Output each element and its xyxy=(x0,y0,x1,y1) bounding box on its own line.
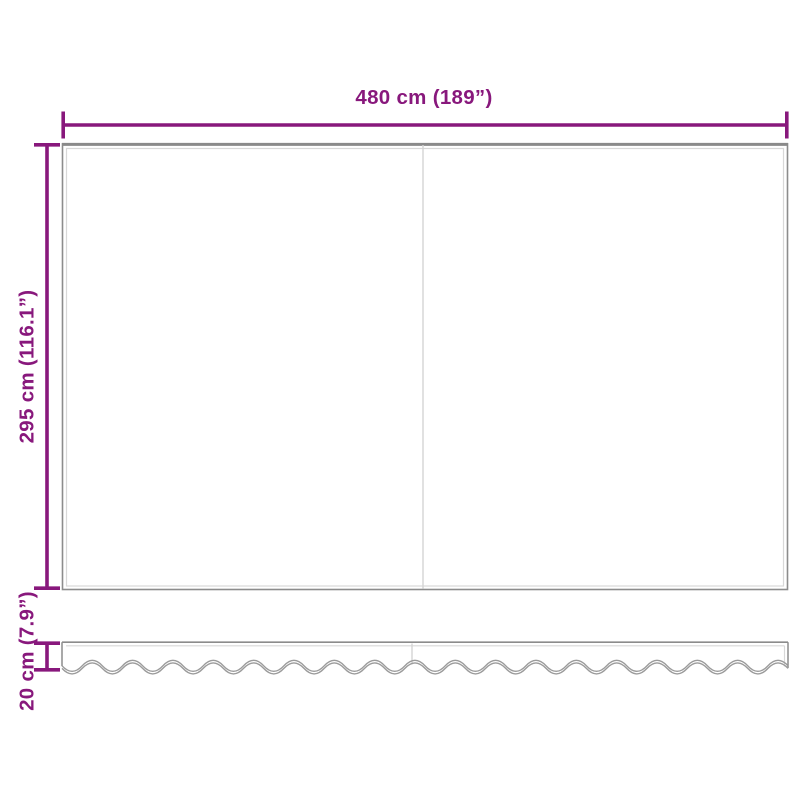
fabric-panel-outline xyxy=(63,144,788,590)
height-dimension-label: 295 cm (116.1”) xyxy=(16,290,39,444)
product-dimension-diagram: 480 cm (189”) 295 cm (116.1”) 20 cm (7.9… xyxy=(0,0,800,800)
valance-wave-inner xyxy=(62,663,788,674)
width-dimension-label: 480 cm (189”) xyxy=(355,86,492,109)
valance-strip xyxy=(62,642,788,674)
width-dimension: 480 cm (189”) xyxy=(63,86,787,139)
fabric-panel xyxy=(62,144,788,590)
valance-dimension-label: 20 cm (7.9”) xyxy=(16,591,39,711)
height-dimension: 295 cm (116.1”) xyxy=(16,145,61,588)
valance-dimension: 20 cm (7.9”) xyxy=(16,591,61,711)
valance-wave-outer xyxy=(62,660,788,671)
fabric-panel-seam xyxy=(67,149,784,587)
diagram-svg: 480 cm (189”) 295 cm (116.1”) 20 cm (7.9… xyxy=(0,0,800,800)
